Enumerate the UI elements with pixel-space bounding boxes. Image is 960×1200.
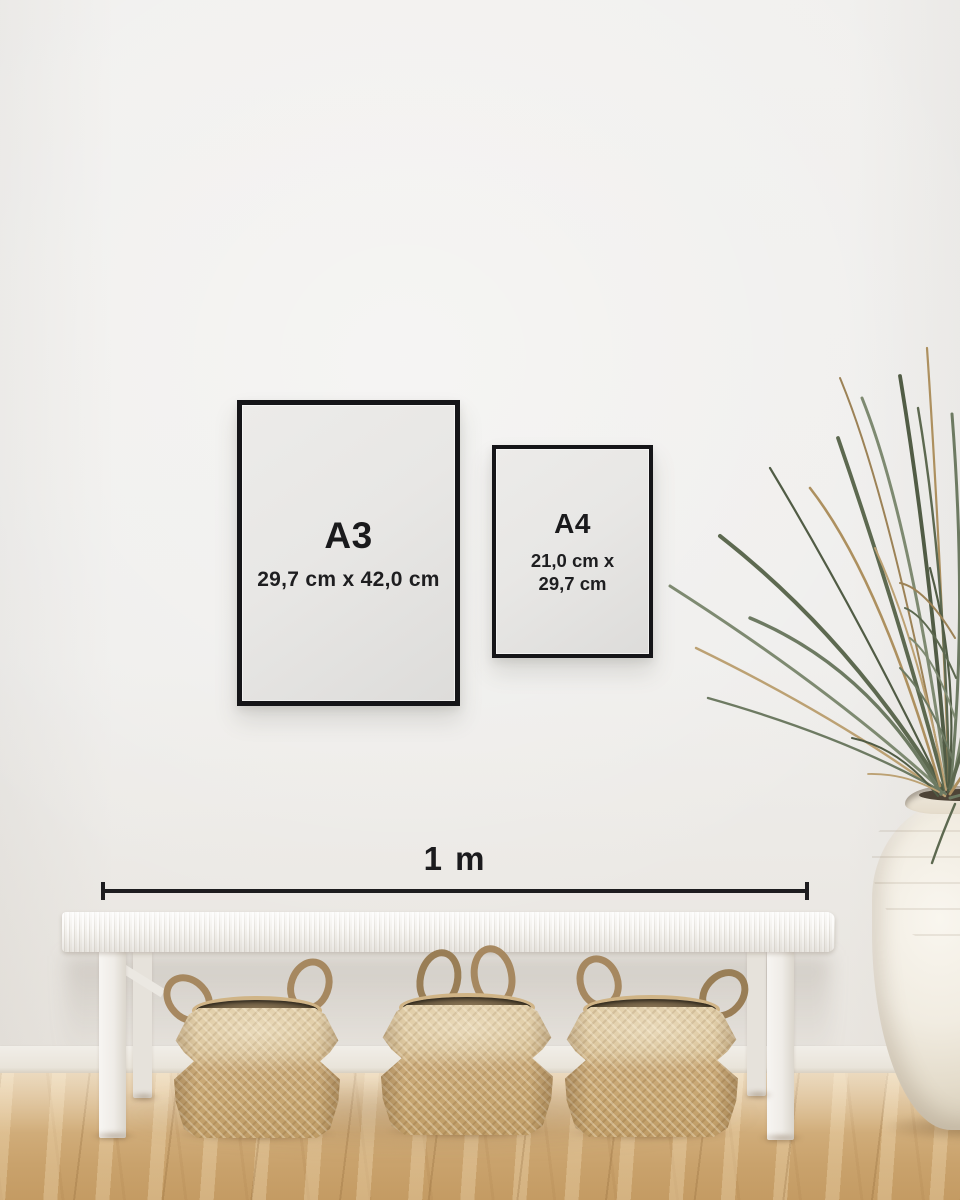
basket-right — [565, 959, 738, 1137]
a3-dimensions-label: 29,7 cm x 42,0 cm — [257, 568, 440, 592]
leg-shadow — [90, 1131, 136, 1141]
bench-leg-left-front — [99, 950, 126, 1138]
leg-shadow — [758, 1133, 804, 1143]
leg-shadow — [128, 1092, 160, 1102]
basket-body — [565, 1007, 738, 1137]
bench-leg-right-front — [767, 950, 794, 1140]
basket-body — [381, 1005, 553, 1135]
a3-size-label: A3 — [324, 515, 372, 557]
a3-frame: A3 29,7 cm x 42,0 cm — [237, 400, 460, 706]
basket-middle — [381, 957, 553, 1135]
scale-bar-left-tick — [101, 882, 105, 900]
scale-bar-line — [101, 889, 809, 893]
basket-body — [174, 1008, 340, 1138]
bench-seat — [62, 912, 835, 952]
palm-plant — [600, 318, 960, 858]
scale-bar-right-tick — [805, 882, 809, 900]
a4-size-label: A4 — [554, 508, 591, 540]
room-scene: A3 29,7 cm x 42,0 cm A4 21,0 cm x 29,7 c… — [0, 0, 960, 1200]
bench-leg-right-rear — [747, 950, 766, 1096]
basket-left — [174, 960, 340, 1138]
leg-shadow — [742, 1090, 774, 1100]
